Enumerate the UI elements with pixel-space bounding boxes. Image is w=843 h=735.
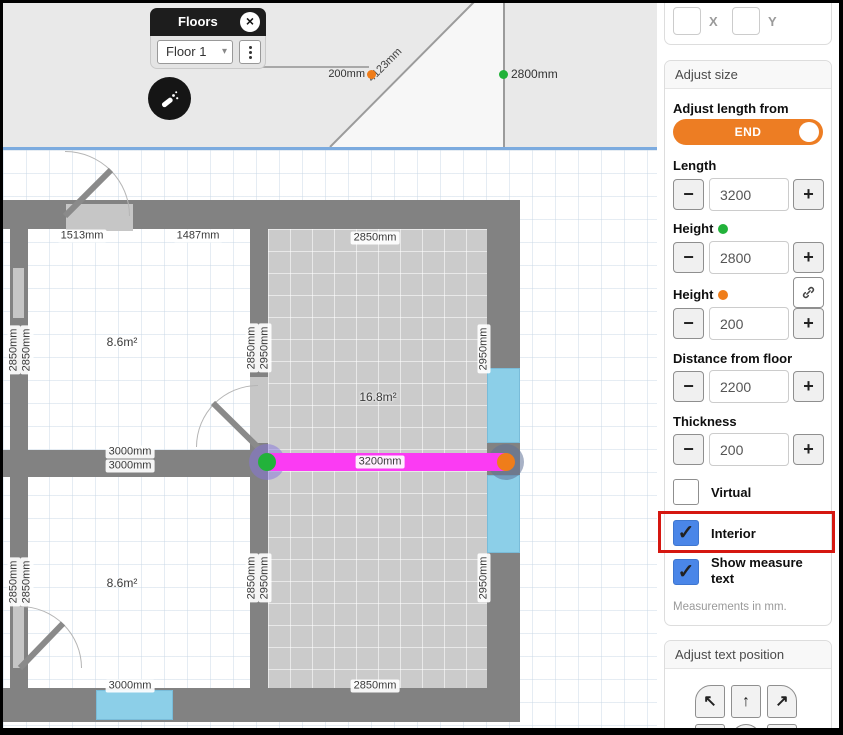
text-position-left-button[interactable]: [695, 724, 725, 728]
window-bottom[interactable]: [96, 690, 173, 720]
measure-label: 1487mm: [174, 230, 223, 243]
y-coordinate-input[interactable]: [732, 7, 760, 35]
length-label: Length: [673, 158, 716, 173]
measure-label: 2850mm: [8, 558, 21, 607]
adjust-size-card: Adjust size Adjust length from END Lengt…: [664, 60, 832, 626]
height-orange-label: Height: [673, 287, 728, 302]
measure-label: 2850mm: [351, 680, 400, 693]
distance-input[interactable]: [709, 370, 789, 403]
adjust-length-from-toggle[interactable]: END: [673, 119, 823, 145]
height-green-decrement-button[interactable]: −: [673, 242, 704, 273]
measure-label: 3000mm: [106, 680, 155, 693]
floors-panel: Floors × Floor 1 ▾: [150, 8, 266, 69]
kebab-dot: [249, 51, 252, 54]
elevation-orange-height-label: 200mm: [328, 68, 365, 80]
interior-label: Interior: [711, 526, 756, 541]
measure-label: 2950mm: [478, 554, 491, 603]
check-icon: ✓: [674, 521, 698, 545]
measure-label: 3000mm: [106, 446, 155, 459]
link-heights-button[interactable]: [793, 277, 824, 308]
height-orange-input[interactable]: [709, 307, 789, 340]
length-increment-button[interactable]: +: [793, 179, 824, 210]
height-orange-increment-button[interactable]: +: [793, 308, 824, 339]
thickness-decrement-button[interactable]: −: [673, 434, 704, 465]
floors-panel-body: Floor 1 ▾: [150, 36, 266, 69]
show-measure-text-label: Show measure text: [711, 555, 816, 587]
measure-label: 2850mm: [351, 232, 400, 245]
distance-from-floor-label: Distance from floor: [673, 351, 792, 366]
close-icon[interactable]: ×: [240, 12, 260, 32]
measure-label: 2850mm: [8, 326, 21, 375]
floor-select-value: Floor 1: [166, 44, 206, 59]
height-green-increment-button[interactable]: +: [793, 242, 824, 273]
adjust-text-position-card: Adjust text position ↖ ↑ ↗: [664, 640, 832, 728]
adjust-size-header: Adjust size: [665, 61, 831, 89]
length-input[interactable]: [709, 178, 789, 211]
room-area-label: 8.6m²: [107, 576, 138, 590]
magic-wand-icon: [158, 87, 182, 111]
measure-label: 2850mm: [246, 324, 259, 373]
toggle-value: END: [735, 125, 762, 139]
selected-wall-measure-label: 3200mm: [356, 456, 405, 469]
thickness-increment-button[interactable]: +: [793, 434, 824, 465]
window-right-lower[interactable]: [487, 475, 520, 553]
floors-panel-title: Floors: [178, 14, 218, 29]
wall-endpoint-orange[interactable]: [497, 453, 515, 471]
green-dot-icon: [718, 224, 728, 234]
measure-label: 2850mm: [246, 554, 259, 603]
window-left-upper[interactable]: [13, 268, 24, 318]
adjust-text-position-header: Adjust text position: [665, 641, 831, 669]
height-green-input[interactable]: [709, 241, 789, 274]
show-measure-text-checkbox[interactable]: ✓: [673, 559, 699, 585]
measure-label: 2850mm: [21, 558, 34, 607]
thickness-input[interactable]: [709, 433, 789, 466]
text-position-up-left-button[interactable]: ↖: [695, 685, 725, 718]
kebab-dot: [249, 46, 252, 49]
orange-endpoint-marker[interactable]: [367, 70, 376, 79]
floorplan-canvas-column: 4123mm 200mm 2800mm Floors × Floor 1 ▾: [3, 3, 657, 728]
text-position-right-button[interactable]: [767, 724, 797, 728]
measure-label: 2950mm: [259, 324, 272, 373]
height-orange-decrement-button[interactable]: −: [673, 308, 704, 339]
toggle-knob: [799, 122, 819, 142]
magic-wand-button[interactable]: [148, 77, 191, 120]
text-position-center-button[interactable]: [731, 724, 761, 728]
measure-label: 2850mm: [21, 326, 34, 375]
wall-endpoint-green[interactable]: [258, 453, 276, 471]
app-content: 4123mm 200mm 2800mm Floors × Floor 1 ▾: [3, 3, 839, 728]
orange-dot-icon: [718, 290, 728, 300]
link-icon: [801, 285, 816, 300]
app-window: 4123mm 200mm 2800mm Floors × Floor 1 ▾: [0, 0, 843, 735]
position-card: X Y: [664, 3, 832, 45]
height-green-label: Height: [673, 221, 728, 236]
elevation-green-height-label: 2800mm: [511, 67, 558, 81]
thickness-label: Thickness: [673, 414, 737, 429]
measure-label: 1513mm: [58, 230, 107, 243]
text-position-up-right-button[interactable]: ↗: [767, 685, 797, 718]
kebab-dot: [249, 56, 252, 59]
green-endpoint-marker[interactable]: [499, 70, 508, 79]
x-coordinate-input[interactable]: [673, 7, 701, 35]
distance-increment-button[interactable]: +: [793, 371, 824, 402]
interior-checkbox[interactable]: ✓: [673, 520, 699, 546]
distance-decrement-button[interactable]: −: [673, 371, 704, 402]
window-right-upper[interactable]: [487, 368, 520, 443]
room-area-label: 8.6m²: [107, 335, 138, 349]
x-coordinate-label: X: [709, 14, 718, 29]
measure-label: 2950mm: [478, 325, 491, 374]
virtual-label: Virtual: [711, 485, 751, 500]
check-icon: ✓: [674, 560, 698, 584]
floor-options-button[interactable]: [239, 40, 261, 64]
adjust-length-from-label: Adjust length from: [673, 101, 789, 116]
floorplan-2d-view[interactable]: 1513mm 1487mm 2850mm 2850mm 2850mm 2850m…: [3, 150, 657, 728]
y-coordinate-label: Y: [768, 14, 777, 29]
room-area-label: 16.8m²: [359, 390, 396, 404]
length-decrement-button[interactable]: −: [673, 179, 704, 210]
text-position-up-button[interactable]: ↑: [731, 685, 761, 718]
chevron-down-icon: ▾: [222, 41, 227, 63]
wall-elevation-preview: 4123mm 200mm 2800mm Floors × Floor 1 ▾: [3, 3, 657, 147]
floors-panel-header: Floors ×: [150, 8, 266, 36]
wall-bottom[interactable]: [3, 688, 520, 722]
measurements-note: Measurements in mm.: [673, 601, 787, 613]
virtual-checkbox[interactable]: ✓: [673, 479, 699, 505]
properties-sidebar: X Y Adjust size Adjust length from END L…: [659, 3, 839, 728]
floor-select[interactable]: Floor 1 ▾: [157, 40, 233, 64]
measure-label: 2950mm: [259, 554, 272, 603]
measure-label: 3000mm: [106, 460, 155, 473]
